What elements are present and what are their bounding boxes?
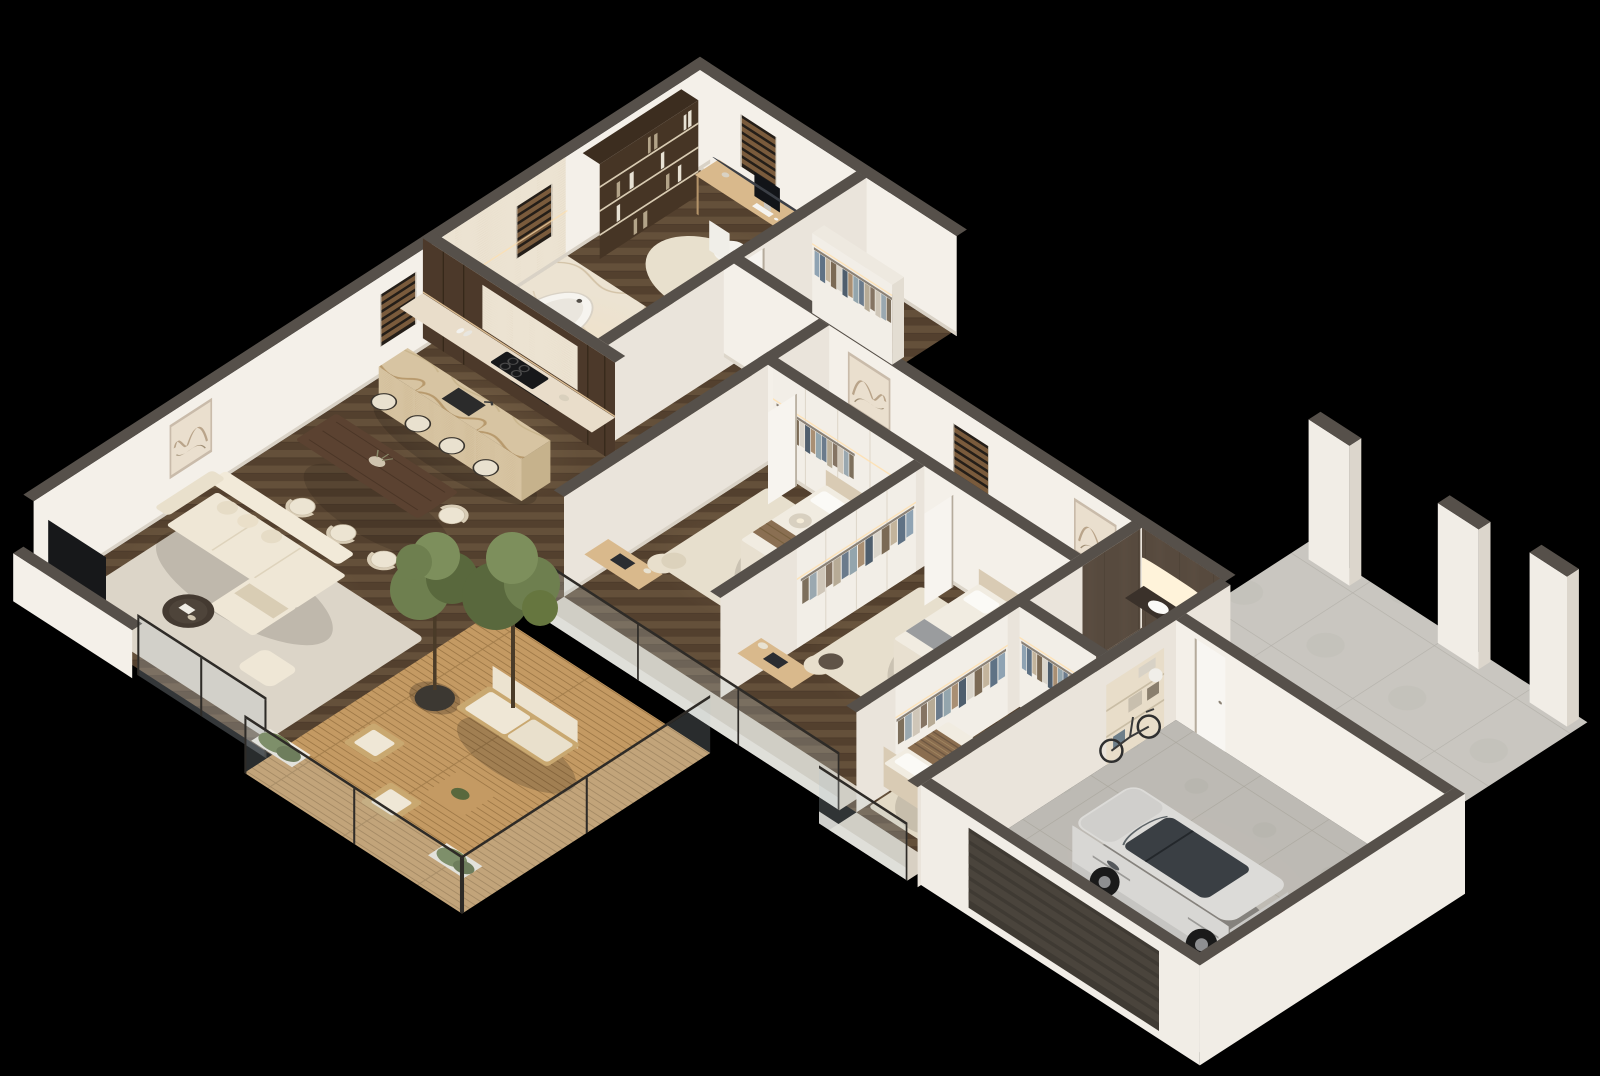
door-leaf bbox=[768, 394, 797, 505]
wall-stub-face bbox=[1438, 503, 1479, 669]
floorplan-stage bbox=[0, 0, 1600, 1076]
door-leaf bbox=[924, 495, 953, 606]
side-door-leaf bbox=[1195, 638, 1226, 752]
wall-stub-face bbox=[1530, 552, 1567, 726]
isometric-floorplan-render bbox=[0, 0, 1600, 1076]
wall-stub-face bbox=[1309, 419, 1350, 585]
helmet bbox=[1149, 668, 1163, 682]
